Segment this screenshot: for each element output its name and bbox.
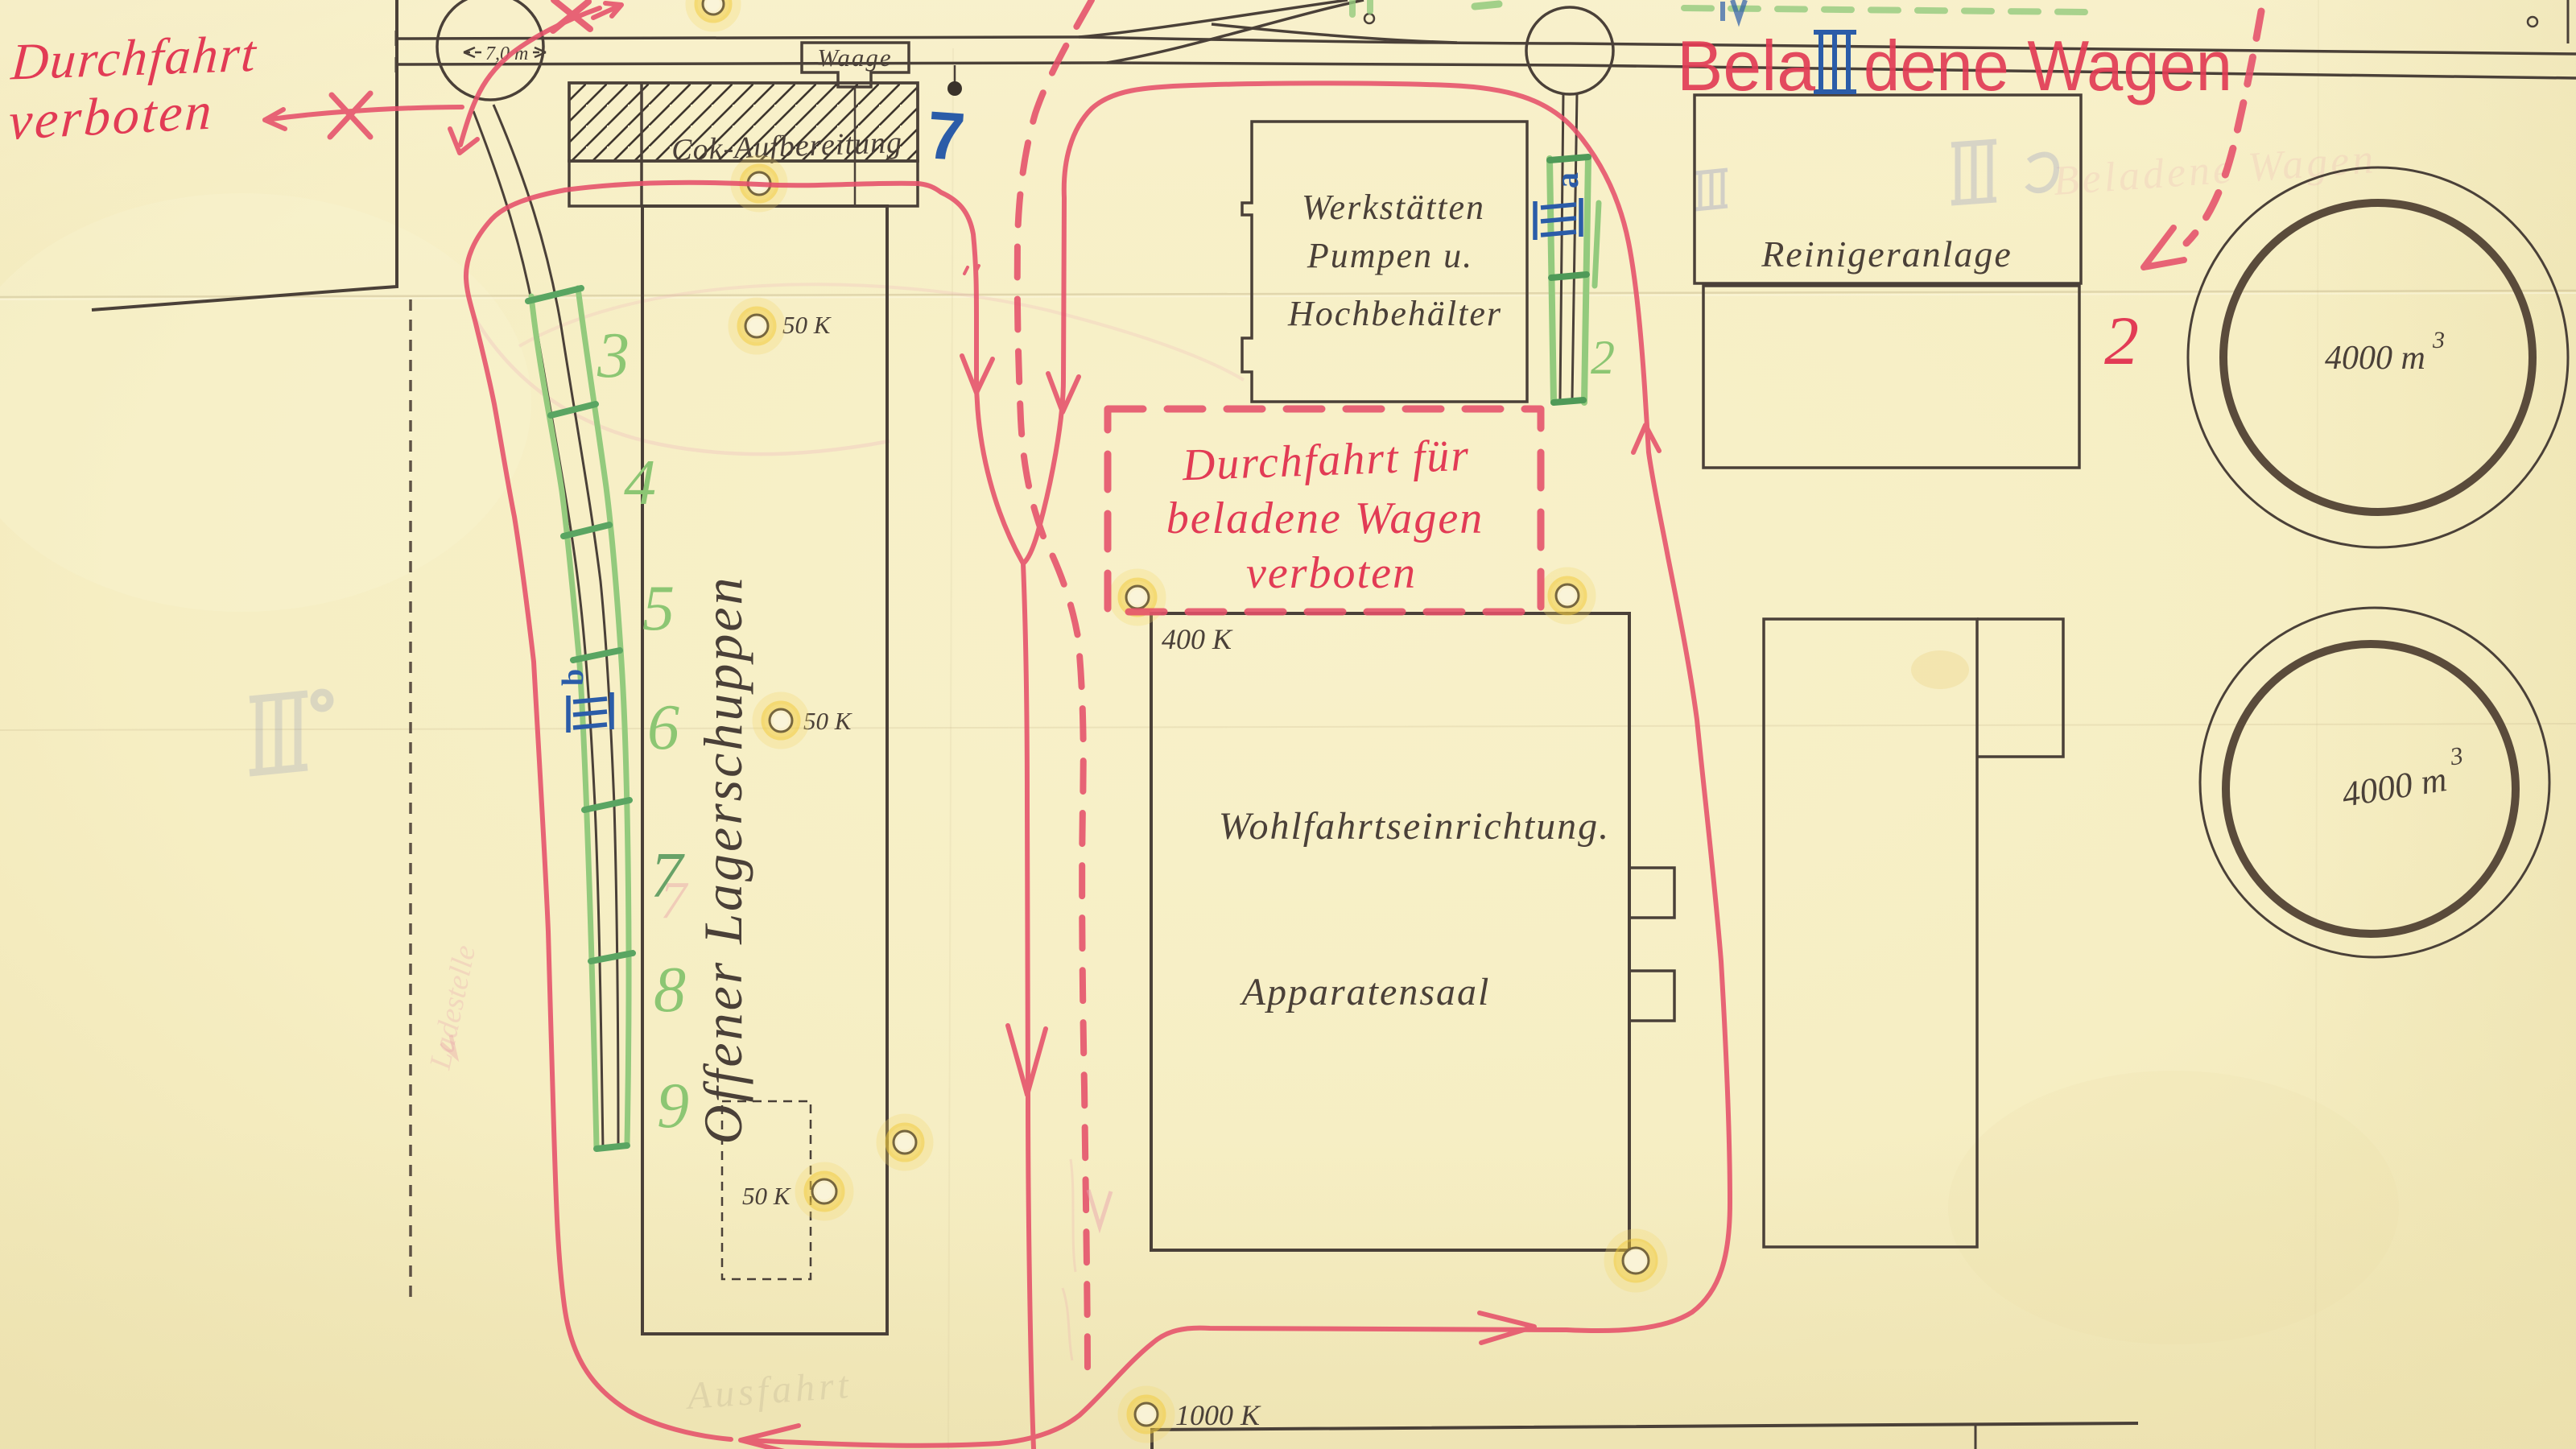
svg-text:50 K: 50 K — [742, 1182, 792, 1210]
svg-text:50 K: 50 K — [782, 311, 832, 339]
svg-text:4: 4 — [624, 448, 656, 518]
svg-text:Apparatensaal: Apparatensaal — [1240, 971, 1491, 1013]
svg-text:a: a — [1549, 172, 1585, 188]
svg-text:8: 8 — [654, 955, 686, 1026]
svg-text:5: 5 — [642, 573, 675, 644]
svg-text:beladene Wagen: beladene Wagen — [1166, 493, 1484, 543]
svg-text:1000 K: 1000 K — [1175, 1399, 1261, 1431]
svg-text:verboten: verboten — [7, 82, 215, 151]
svg-text:Offener Lagerschuppen: Offener Lagerschuppen — [692, 575, 753, 1144]
svg-text:Wohlfahrtseinrichtung.: Wohlfahrtseinrichtung. — [1219, 805, 1610, 848]
svg-text:2: 2 — [2104, 302, 2139, 379]
svg-text:9: 9 — [657, 1071, 689, 1141]
svg-text:Durchfahrt für: Durchfahrt für — [1181, 431, 1471, 490]
svg-text:7: 7 — [925, 97, 968, 175]
svg-text:50 K: 50 K — [803, 707, 853, 735]
svg-text:verboten: verboten — [1246, 548, 1417, 598]
svg-text:dene Wagen: dene Wagen — [1864, 26, 2232, 105]
svg-text:Reinigeranlage: Reinigeranlage — [1761, 233, 2013, 275]
svg-text:6: 6 — [647, 692, 679, 763]
svg-text:4000 m: 4000 m — [2325, 340, 2425, 377]
svg-text:400 K: 400 K — [1162, 623, 1233, 655]
svg-text:Hochbehälter: Hochbehälter — [1287, 294, 1502, 333]
svg-text:3: 3 — [597, 320, 630, 391]
svg-text:Waage: Waage — [817, 43, 892, 72]
svg-text:7: 7 — [650, 840, 685, 911]
svg-text:Durchfahrt: Durchfahrt — [9, 25, 259, 91]
svg-text:Werkstätten: Werkstätten — [1302, 188, 1485, 227]
svg-text:Bela: Bela — [1677, 26, 1815, 105]
svg-text:2: 2 — [1591, 331, 1615, 384]
svg-text:b: b — [556, 669, 590, 686]
svg-text:3: 3 — [2432, 327, 2445, 353]
svg-text:Pumpen u.: Pumpen u. — [1307, 236, 1473, 275]
